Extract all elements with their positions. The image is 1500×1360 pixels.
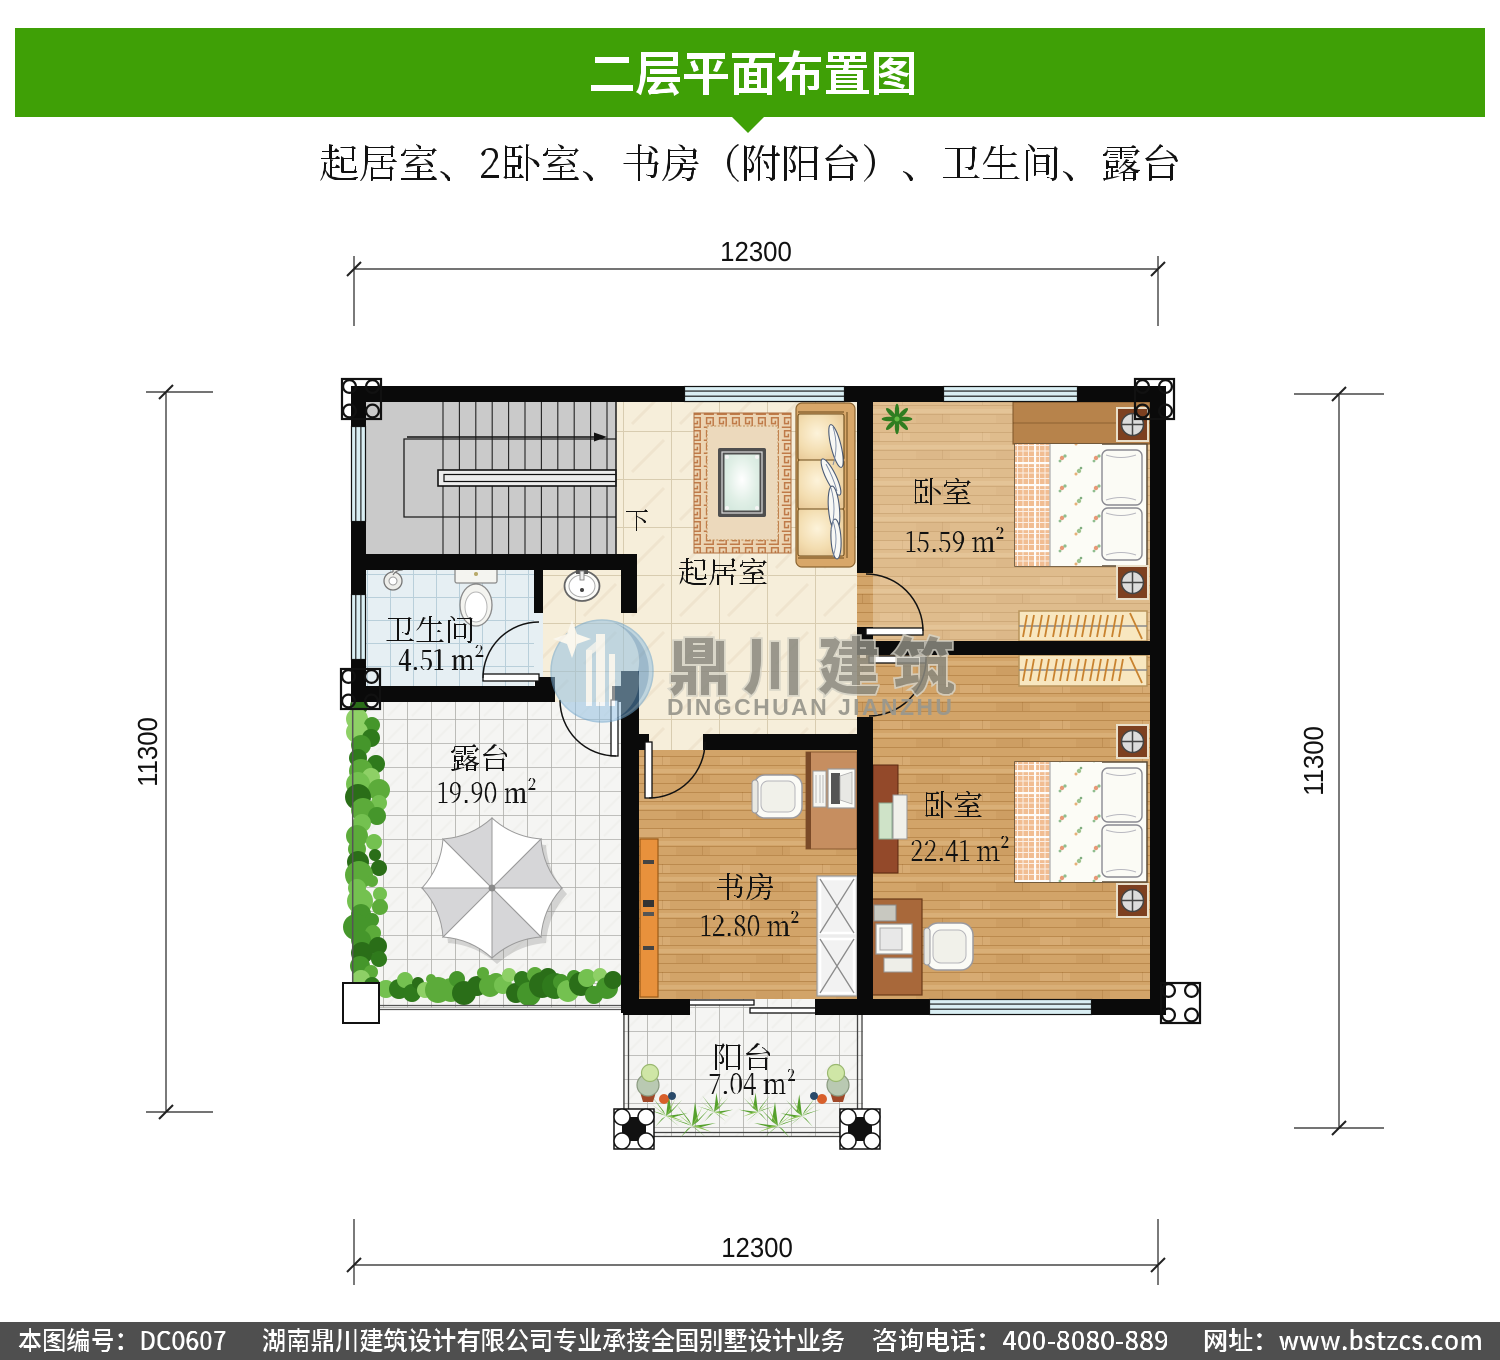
svg-text:11300: 11300: [1298, 726, 1329, 796]
svg-text:12300: 12300: [720, 236, 792, 267]
svg-text:12300: 12300: [721, 1232, 793, 1263]
svg-text:DINGCHUAN JIANZHU: DINGCHUAN JIANZHU: [667, 694, 954, 720]
svg-text:11300: 11300: [132, 717, 163, 787]
